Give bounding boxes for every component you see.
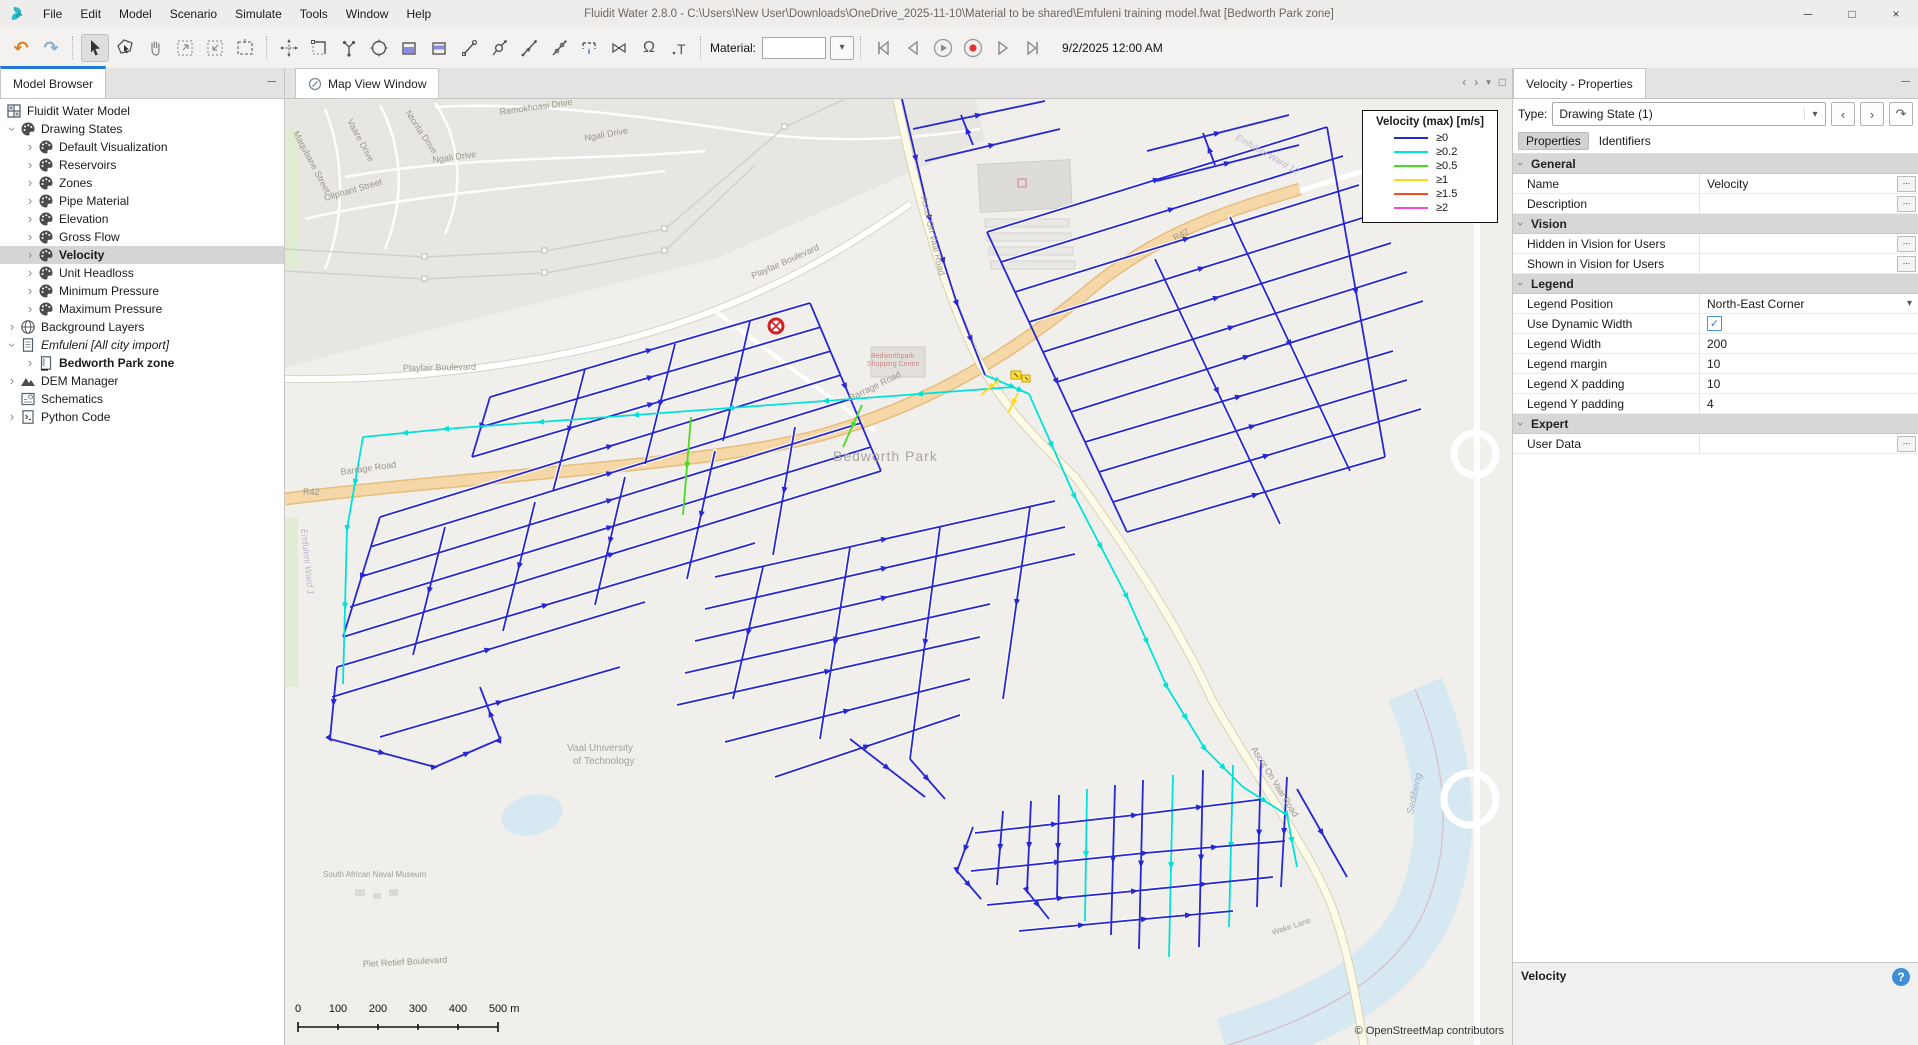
- pipe-icon: [458, 37, 480, 59]
- doc-icon: [20, 337, 36, 353]
- prop-label: Use Dynamic Width: [1513, 317, 1699, 331]
- scale-label: 400: [449, 1003, 467, 1015]
- menu-model[interactable]: Model: [110, 1, 161, 27]
- scale-label: 300: [409, 1003, 427, 1015]
- hydrant-icon: Ω: [643, 40, 655, 56]
- legend-swatch: [1394, 179, 1428, 181]
- tab-list-button[interactable]: ▾: [1486, 77, 1491, 88]
- scale-bar: 0100200300400500 m: [295, 1003, 535, 1037]
- map-label: South African Naval Museum: [323, 870, 426, 879]
- palette-icon: [38, 301, 54, 317]
- fluidit-logo-icon: [8, 5, 26, 23]
- tree-item-velocity[interactable]: ›Velocity: [0, 246, 284, 264]
- skip-end-icon: [1023, 38, 1043, 58]
- tree-item-label: Default Visualization: [59, 140, 168, 154]
- maximize-button[interactable]: □: [1830, 0, 1874, 27]
- tree-item-label: Unit Headloss: [59, 266, 134, 280]
- next-tab-button[interactable]: ›: [1474, 75, 1478, 89]
- section-expert[interactable]: ›Expert: [1513, 414, 1918, 434]
- valve-tool-button[interactable]: [605, 34, 633, 62]
- junction-tool-button[interactable]: [335, 34, 363, 62]
- model-browser-tab-label: Model Browser: [13, 77, 93, 91]
- prop-label: Legend Position: [1513, 297, 1699, 311]
- tree-item-label: Zones: [59, 176, 92, 190]
- menu-file[interactable]: File: [34, 1, 71, 27]
- tree-item-label: Bedworth Park zone: [59, 356, 174, 370]
- tree-item-label: Gross Flow: [59, 230, 120, 244]
- legend-swatch: [1394, 151, 1428, 153]
- prop-value-text: Velocity: [1707, 177, 1748, 191]
- section-label: General: [1527, 157, 1703, 171]
- chevron-down-icon: ›: [1514, 277, 1526, 291]
- tree-item-elevation[interactable]: ›Elevation: [0, 210, 284, 228]
- legend-label: ≥1.5: [1436, 188, 1466, 200]
- skip-end-button[interactable]: [1019, 34, 1047, 62]
- prop-label: Legend Y padding: [1513, 397, 1699, 411]
- property-grid: ›GeneralNameVelocity...Description...›Vi…: [1513, 153, 1918, 454]
- section-label: Legend: [1527, 277, 1703, 291]
- valve-pipe-tool-button[interactable]: [515, 34, 543, 62]
- junction-icon: [338, 37, 360, 59]
- tab-model-browser[interactable]: Model Browser: [0, 66, 106, 98]
- map-panel: Map View Window ‹ › ▾ □: [285, 68, 1512, 1045]
- prop-row-legend-margin[interactable]: Legend margin10: [1513, 354, 1918, 374]
- chevron-icon[interactable]: ›: [22, 248, 38, 262]
- chevron-icon[interactable]: ›: [22, 140, 38, 154]
- chevron-icon[interactable]: ›: [5, 121, 19, 137]
- move-vertex-tool-button[interactable]: [275, 34, 303, 62]
- prop-row-hidden-in-vision-for-users[interactable]: Hidden in Vision for Users...: [1513, 234, 1918, 254]
- maximize-view-button[interactable]: □: [1499, 75, 1506, 89]
- tree-item-emfuleni-all-city-import[interactable]: ›Emfuleni [All city import]: [0, 336, 284, 354]
- zone-icon: [38, 355, 54, 371]
- model-browser-panel: Model Browser ─ Fluidit Water Model›Draw…: [0, 68, 285, 1045]
- chevron-down-icon: ›: [1514, 217, 1526, 231]
- velocity-legend[interactable]: Velocity (max) [m/s] ≥0≥0.2≥0.5≥1≥1.5≥2: [1362, 110, 1498, 223]
- tab-velocity-properties[interactable]: Velocity - Properties: [1513, 68, 1646, 98]
- drain-tool-button[interactable]: [575, 34, 603, 62]
- map-label: Vaal University: [567, 743, 633, 754]
- legend-entry: ≥0: [1371, 131, 1489, 145]
- zoom-window-icon: [174, 37, 196, 59]
- chevron-icon[interactable]: ›: [22, 194, 38, 208]
- material-dropdown[interactable]: ▾: [762, 36, 854, 60]
- prop-label: Shown in Vision for Users: [1513, 257, 1699, 271]
- prop-value-legend-x-padding[interactable]: 10: [1699, 374, 1918, 393]
- chevron-icon[interactable]: ›: [22, 284, 38, 298]
- legend-label: ≥1: [1436, 174, 1466, 186]
- chevron-icon[interactable]: ›: [4, 374, 20, 388]
- tree-item-label: Reservoirs: [59, 158, 116, 172]
- step-back-icon: [903, 38, 923, 58]
- legend-entry: ≥0.5: [1371, 159, 1489, 173]
- reservoir-tool-button[interactable]: [365, 34, 393, 62]
- chevron-icon[interactable]: ›: [22, 302, 38, 316]
- type-value: Drawing State (1): [1553, 107, 1804, 121]
- prop-row-legend-x-padding[interactable]: Legend X padding10: [1513, 374, 1918, 394]
- palette-icon: [38, 229, 54, 245]
- map-view-tab-label: Map View Window: [328, 77, 426, 91]
- skip-start-button[interactable]: [869, 34, 897, 62]
- tank-tool-button[interactable]: [395, 34, 423, 62]
- minimize-button[interactable]: ─: [1786, 0, 1830, 27]
- title-bar: FileEditModelScenarioSimulateToolsWindow…: [0, 0, 1918, 28]
- palette-icon: [38, 157, 54, 173]
- scale-label: 100: [329, 1003, 347, 1015]
- help-title: Velocity: [1521, 969, 1566, 983]
- tree-item-pipe-material[interactable]: ›Pipe Material: [0, 192, 284, 210]
- redo-button[interactable]: ↷: [37, 34, 65, 62]
- prop-value-shown-in-vision-for-users[interactable]: ...: [1699, 254, 1918, 273]
- map-label: Playfair Boulevard: [403, 362, 476, 373]
- scale-label: 200: [369, 1003, 387, 1015]
- prop-value-text: North-East Corner: [1707, 297, 1804, 311]
- model-icon: [6, 103, 22, 119]
- tree-item-label: Background Layers: [41, 320, 144, 334]
- prop-value-name[interactable]: Velocity...: [1699, 174, 1918, 193]
- prop-label: Hidden in Vision for Users: [1513, 237, 1699, 251]
- undo-icon: ↶: [13, 39, 28, 57]
- bowtie-valve-icon: [608, 37, 630, 59]
- tree-item-label: Maximum Pressure: [59, 302, 162, 316]
- lasso-select-tool-button[interactable]: [111, 34, 139, 62]
- palette-icon: [38, 193, 54, 209]
- select-region-icon: [234, 37, 256, 59]
- prop-row-use-dynamic-width[interactable]: Use Dynamic Width✓: [1513, 314, 1918, 334]
- map-label: R42: [303, 487, 320, 497]
- select-region-button[interactable]: [231, 34, 259, 62]
- legend-label: ≥0.2: [1436, 146, 1466, 158]
- model-tree: Fluidit Water Model›Drawing States›Defau…: [0, 99, 284, 426]
- tree-item-label: Emfuleni [All city import]: [41, 338, 169, 352]
- palette-icon: [20, 121, 36, 137]
- prop-value-text: 10: [1707, 377, 1720, 391]
- dem-icon: [20, 373, 36, 389]
- main-toolbar: ↶ ↷ Ω T Material: ▾: [0, 27, 1918, 69]
- prop-label: Legend X padding: [1513, 377, 1699, 391]
- legend-entry: ≥1: [1371, 173, 1489, 187]
- label-tool-button[interactable]: T: [665, 34, 693, 62]
- palette-icon: [38, 139, 54, 155]
- section-label: Expert: [1527, 417, 1703, 431]
- refresh-button[interactable]: ↷: [1889, 102, 1913, 126]
- tree-item-dem-manager[interactable]: ›DEM Manager: [0, 372, 284, 390]
- material-value[interactable]: [762, 37, 826, 59]
- prop-value-legend-margin[interactable]: 10: [1699, 354, 1918, 373]
- chevron-icon[interactable]: ›: [22, 176, 38, 190]
- tank-band-icon: [428, 37, 450, 59]
- tree-item-fluidit-water-model[interactable]: Fluidit Water Model: [0, 102, 284, 120]
- section-label: Vision: [1527, 217, 1703, 231]
- lasso-select-icon: [114, 37, 136, 59]
- chevron-icon[interactable]: ›: [22, 266, 38, 280]
- prop-value-hidden-in-vision-for-users[interactable]: ...: [1699, 234, 1918, 253]
- chevron-down-icon[interactable]: ▾: [830, 36, 854, 60]
- step-forward-button[interactable]: [989, 34, 1017, 62]
- select-tool-button[interactable]: [81, 34, 109, 62]
- svg-text:T: T: [677, 41, 686, 57]
- palette-icon: [38, 211, 54, 227]
- tank-icon: [398, 37, 420, 59]
- prev-tab-button[interactable]: ‹: [1462, 75, 1466, 89]
- prop-value-user-data[interactable]: ...: [1699, 434, 1918, 453]
- zoom-out-window-icon: [204, 37, 226, 59]
- pipe-tool-button[interactable]: [455, 34, 483, 62]
- legend-swatch: [1394, 137, 1428, 139]
- prop-value-use-dynamic-width[interactable]: ✓: [1699, 314, 1918, 333]
- reservoir-marker[interactable]: [769, 319, 783, 333]
- subtab-identifiers[interactable]: Identifiers: [1591, 132, 1659, 150]
- reservoir-icon: [368, 37, 390, 59]
- chevron-down-icon: ›: [1514, 157, 1526, 171]
- prop-row-user-data[interactable]: User Data...: [1513, 434, 1918, 454]
- redo-icon: ↷: [43, 39, 58, 57]
- section-general[interactable]: ›General: [1513, 154, 1918, 174]
- chevron-icon[interactable]: ›: [22, 212, 38, 226]
- prop-row-legend-y-padding[interactable]: Legend Y padding4: [1513, 394, 1918, 414]
- tree-item-reservoirs[interactable]: ›Reservoirs: [0, 156, 284, 174]
- map-label: Shopping Centre: [867, 361, 920, 368]
- section-legend[interactable]: ›Legend: [1513, 274, 1918, 294]
- legend-entry: ≥1.5: [1371, 187, 1489, 201]
- hydrant-tool-button[interactable]: Ω: [635, 34, 663, 62]
- prop-row-legend-width[interactable]: Legend Width200: [1513, 334, 1918, 354]
- palette-icon: [38, 247, 54, 263]
- subtab-properties[interactable]: Properties: [1518, 132, 1589, 150]
- prop-row-description[interactable]: Description...: [1513, 194, 1918, 214]
- close-button[interactable]: ×: [1874, 0, 1918, 27]
- chevron-down-icon[interactable]: ▾: [1907, 298, 1912, 309]
- prop-value-text: 4: [1707, 397, 1714, 411]
- ellipsis-button[interactable]: ...: [1897, 176, 1916, 192]
- skip-start-icon: [873, 38, 893, 58]
- prop-value-legend-width[interactable]: 200: [1699, 334, 1918, 353]
- chevron-icon[interactable]: ›: [22, 158, 38, 172]
- check-valve-tool-button[interactable]: [545, 34, 573, 62]
- globe-icon: [20, 319, 36, 335]
- prop-value-text: 200: [1707, 337, 1727, 351]
- prev-object-button[interactable]: ‹: [1831, 102, 1855, 126]
- ellipsis-button[interactable]: ...: [1897, 436, 1916, 452]
- tree-item-default-visualization[interactable]: ›Default Visualization: [0, 138, 284, 156]
- record-icon: [961, 36, 985, 60]
- move-icon: [278, 37, 300, 59]
- map-label: Bedworthpark: [871, 353, 915, 360]
- cursor-icon: [84, 37, 106, 59]
- legend-entry: ≥0.2: [1371, 145, 1489, 159]
- map-drawing: Ramokhoasi DriveNgali DriveNgali DriveOl…: [285, 99, 1510, 1045]
- pan-tool-button[interactable]: [141, 34, 169, 62]
- legend-swatch: [1394, 165, 1428, 167]
- map-canvas[interactable]: Ramokhoasi DriveNgali DriveNgali DriveOl…: [285, 99, 1512, 1045]
- legend-label: ≥2: [1436, 202, 1466, 214]
- section-vision[interactable]: ›Vision: [1513, 214, 1918, 234]
- prop-value-description[interactable]: ...: [1699, 194, 1918, 213]
- step-back-button[interactable]: [899, 34, 927, 62]
- prop-label: Legend margin: [1513, 357, 1699, 371]
- tree-item-label: Elevation: [59, 212, 108, 226]
- material-label: Material:: [710, 41, 756, 55]
- check-valve-icon: [548, 37, 570, 59]
- play-icon: [931, 36, 955, 60]
- tree-item-label: Minimum Pressure: [59, 284, 159, 298]
- properties-tab-label: Velocity - Properties: [1526, 77, 1633, 91]
- palette-icon: [38, 283, 54, 299]
- tree-item-label: Fluidit Water Model: [27, 104, 130, 118]
- tree-item-background-layers[interactable]: ›Background Layers: [0, 318, 284, 336]
- application-window: FileEditModelScenarioSimulateToolsWindow…: [0, 0, 1918, 1045]
- tree-item-minimum-pressure[interactable]: ›Minimum Pressure: [0, 282, 284, 300]
- schem-icon: [20, 391, 36, 407]
- scale-label: 500 m: [489, 1003, 520, 1015]
- map-label: Bedworth Park: [833, 448, 938, 464]
- py-icon: [20, 409, 36, 425]
- text-label-icon: T: [668, 37, 690, 59]
- legend-label: ≥0: [1436, 132, 1466, 144]
- pump-tool-button[interactable]: [485, 34, 513, 62]
- record-button[interactable]: [959, 34, 987, 62]
- valve-pipe-icon: [518, 37, 540, 59]
- next-object-button[interactable]: ›: [1860, 102, 1884, 126]
- park-area: [285, 517, 298, 687]
- chevron-icon[interactable]: ›: [5, 337, 19, 353]
- chevron-icon[interactable]: ›: [22, 356, 38, 370]
- geometry-icon: [308, 37, 330, 59]
- tree-item-label: Python Code: [41, 410, 110, 424]
- menu-tools[interactable]: Tools: [291, 1, 337, 27]
- prop-label: Description: [1513, 197, 1699, 211]
- help-icon[interactable]: ?: [1892, 968, 1910, 986]
- tree-item-gross-flow[interactable]: ›Gross Flow: [0, 228, 284, 246]
- legend-swatch: [1394, 207, 1428, 209]
- scale-label: 0: [295, 1003, 301, 1015]
- zoom-in-window-button[interactable]: [171, 34, 199, 62]
- map-view-icon: [308, 77, 322, 91]
- menu-help[interactable]: Help: [397, 1, 440, 27]
- collapse-right-panel-button[interactable]: ─: [1901, 76, 1910, 86]
- ellipsis-button[interactable]: ...: [1897, 236, 1916, 252]
- prop-row-shown-in-vision-for-users[interactable]: Shown in Vision for Users...: [1513, 254, 1918, 274]
- menu-edit[interactable]: Edit: [71, 1, 110, 27]
- pump-icon: [488, 37, 510, 59]
- help-footer: Velocity ?: [1513, 962, 1918, 1045]
- play-button[interactable]: [929, 34, 957, 62]
- tree-item-schematics[interactable]: Schematics: [0, 390, 284, 408]
- legend-swatch: [1394, 193, 1428, 195]
- prop-label: Name: [1513, 177, 1699, 191]
- legend-entry: ≥2: [1371, 201, 1489, 215]
- ellipsis-button[interactable]: ...: [1897, 256, 1916, 272]
- undo-button[interactable]: ↶: [7, 34, 35, 62]
- tree-item-label: Pipe Material: [59, 194, 129, 208]
- map-label: of Technology: [573, 756, 635, 767]
- tree-item-unit-headloss[interactable]: ›Unit Headloss: [0, 264, 284, 282]
- legend-label: ≥0.5: [1436, 160, 1466, 172]
- step-forward-icon: [993, 38, 1013, 58]
- tree-item-drawing-states[interactable]: ›Drawing States: [0, 120, 284, 138]
- tree-item-label: Schematics: [41, 392, 103, 406]
- palette-icon: [38, 175, 54, 191]
- simulation-datetime[interactable]: 9/2/2025 12:00 AM: [1062, 41, 1163, 55]
- prop-label: User Data: [1513, 437, 1699, 451]
- type-label: Type:: [1518, 107, 1547, 121]
- type-dropdown[interactable]: Drawing State (1) ▾: [1552, 102, 1826, 126]
- tree-item-label: Drawing States: [41, 122, 122, 136]
- tree-item-label: Velocity: [59, 248, 104, 262]
- tree-item-zones[interactable]: ›Zones: [0, 174, 284, 192]
- properties-subtabs: PropertiesIdentifiers: [1513, 129, 1918, 153]
- tab-map-view[interactable]: Map View Window: [295, 68, 439, 98]
- drain-icon: [578, 37, 600, 59]
- chevron-icon[interactable]: ›: [4, 320, 20, 334]
- menu-scenario[interactable]: Scenario: [161, 1, 226, 27]
- chevron-icon[interactable]: ›: [4, 410, 20, 424]
- tree-item-python-code[interactable]: ›Python Code: [0, 408, 284, 426]
- tank2-tool-button[interactable]: [425, 34, 453, 62]
- checkbox-checked[interactable]: ✓: [1707, 316, 1722, 331]
- park-area: [285, 129, 299, 269]
- hand-icon: [144, 37, 166, 59]
- collapse-left-panel-button[interactable]: ─: [267, 76, 276, 86]
- prop-row-name[interactable]: NameVelocity...: [1513, 174, 1918, 194]
- prop-value-legend-position[interactable]: North-East Corner▾: [1699, 294, 1918, 313]
- properties-panel: Velocity - Properties ─ Type: Drawing St…: [1512, 68, 1918, 1045]
- menu-window[interactable]: Window: [337, 1, 398, 27]
- chevron-down-icon: ▾: [1804, 109, 1825, 120]
- tree-item-label: DEM Manager: [41, 374, 118, 388]
- ellipsis-button[interactable]: ...: [1897, 196, 1916, 212]
- legend-title: Velocity (max) [m/s]: [1371, 116, 1489, 128]
- menu-bar: FileEditModelScenarioSimulateToolsWindow…: [34, 1, 440, 27]
- prop-value-legend-y-padding[interactable]: 4: [1699, 394, 1918, 413]
- menu-simulate[interactable]: Simulate: [226, 1, 291, 27]
- palette-icon: [38, 265, 54, 281]
- prop-row-legend-position[interactable]: Legend PositionNorth-East Corner▾: [1513, 294, 1918, 314]
- chevron-down-icon: ›: [1514, 417, 1526, 431]
- prop-label: Legend Width: [1513, 337, 1699, 351]
- tree-item-bedworth-park-zone[interactable]: ›Bedworth Park zone: [0, 354, 284, 372]
- prop-value-text: 10: [1707, 357, 1720, 371]
- chevron-icon[interactable]: ›: [22, 230, 38, 244]
- geometry-tool-button[interactable]: [305, 34, 333, 62]
- zoom-out-window-button[interactable]: [201, 34, 229, 62]
- map-attribution[interactable]: © OpenStreetMap contributors: [1355, 1025, 1504, 1037]
- scale-ruler: [297, 1021, 517, 1033]
- tree-item-maximum-pressure[interactable]: ›Maximum Pressure: [0, 300, 284, 318]
